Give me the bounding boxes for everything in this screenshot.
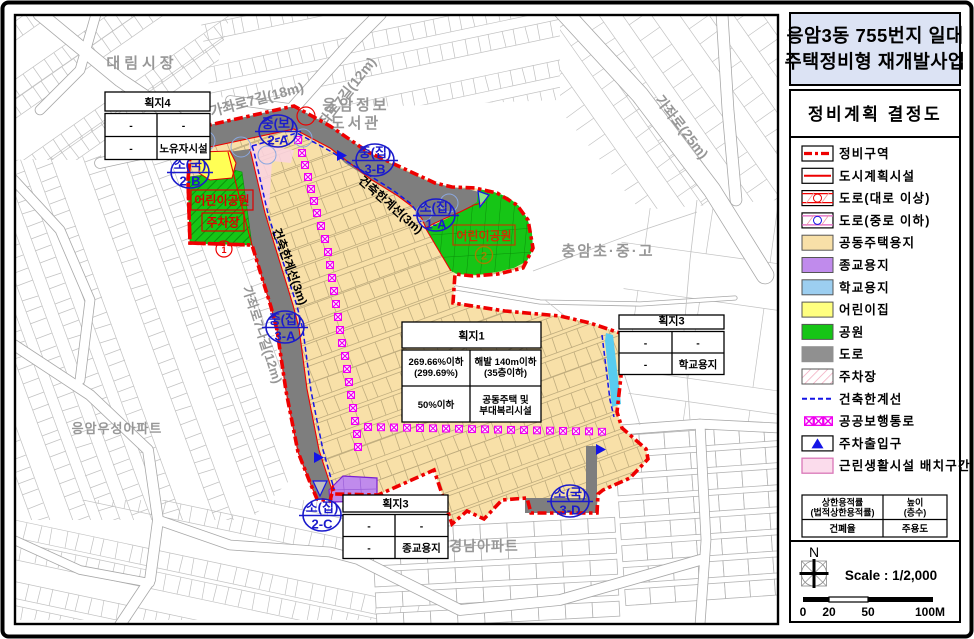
svg-text:공동주택 및: 공동주택 및 — [482, 394, 529, 406]
svg-text:상한용적률: 상한용적률 — [822, 497, 863, 508]
svg-text:20: 20 — [822, 605, 836, 619]
svg-text:도서관: 도서관 — [331, 115, 381, 132]
svg-text:응암3동 755번지 일대: 응암3동 755번지 일대 — [786, 25, 963, 46]
svg-text:도시계획시설: 도시계획시설 — [839, 168, 915, 183]
svg-text:2: 2 — [481, 251, 487, 263]
svg-text:도로(대로 이상): 도로(대로 이상) — [839, 191, 931, 206]
svg-text:주차장: 주차장 — [839, 369, 877, 384]
svg-text:0: 0 — [800, 605, 807, 619]
svg-text:공원: 공원 — [839, 325, 864, 339]
svg-text:주차출입구: 주차출입구 — [839, 436, 903, 451]
svg-text:2-B: 2-B — [180, 174, 201, 189]
svg-text:학교용지: 학교용지 — [839, 280, 890, 295]
svg-text:3-B: 3-B — [365, 162, 386, 177]
svg-text:2-C: 2-C — [312, 517, 334, 532]
svg-text:공공보행통로: 공공보행통로 — [839, 414, 915, 429]
svg-text:소(집): 소(집) — [306, 500, 339, 515]
svg-text:-: - — [420, 521, 424, 533]
svg-text:중(집): 중(집) — [269, 312, 302, 327]
svg-text:50%이하: 50%이하 — [418, 399, 455, 411]
svg-text:해발 140m이하: 해발 140m이하 — [475, 356, 537, 368]
svg-text:(법적상한용적률): (법적상한용적률) — [811, 507, 875, 518]
svg-text:건축한계선: 건축한계선 — [839, 391, 903, 406]
svg-text:주차장: 주차장 — [206, 215, 239, 230]
svg-text:1: 1 — [221, 245, 226, 255]
svg-text:3-A: 3-A — [275, 329, 297, 344]
svg-text:근린생활시설 배치구간: 근린생활시설 배치구간 — [839, 458, 971, 473]
svg-text:-: - — [367, 543, 371, 555]
svg-text:중(집): 중(집) — [359, 145, 392, 160]
svg-text:-: - — [644, 337, 648, 349]
svg-text:소(집): 소(집) — [420, 200, 453, 215]
svg-text:(299.69%): (299.69%) — [414, 368, 458, 379]
svg-text:Scale : 1/2,000: Scale : 1/2,000 — [845, 568, 937, 583]
svg-text:정비계획 결정도: 정비계획 결정도 — [808, 105, 942, 124]
svg-text:응암우성아파트: 응암우성아파트 — [72, 421, 163, 436]
svg-text:(35층이하): (35층이하) — [484, 367, 527, 379]
svg-text:획지3: 획지3 — [382, 497, 408, 511]
svg-text:어린이공원: 어린이공원 — [194, 193, 249, 208]
svg-text:대림시장: 대림시장 — [106, 54, 177, 72]
svg-text:종교용지: 종교용지 — [839, 258, 890, 273]
svg-text:-: - — [182, 120, 186, 132]
svg-text:-: - — [129, 143, 133, 155]
svg-text:종교용지: 종교용지 — [402, 542, 441, 555]
svg-text:269.66%이하: 269.66%이하 — [409, 356, 464, 368]
svg-text:부대복리시설: 부대복리시설 — [479, 405, 532, 417]
svg-text:1-A: 1-A — [426, 217, 448, 232]
svg-text:(층수): (층수) — [904, 507, 927, 518]
svg-text:공동주택용지: 공동주택용지 — [839, 235, 915, 250]
svg-text:높이: 높이 — [907, 497, 924, 508]
svg-text:도로(중로 이하): 도로(중로 이하) — [839, 213, 931, 228]
svg-text:충암초·중·고: 충암초·중·고 — [562, 242, 655, 260]
svg-text:주택정비형 재개발사업: 주택정비형 재개발사업 — [785, 51, 966, 72]
svg-text:-: - — [696, 337, 700, 349]
svg-text:어린이집: 어린이집 — [839, 302, 890, 317]
svg-text:중(보): 중(보) — [262, 116, 295, 131]
svg-text:획지3: 획지3 — [658, 314, 684, 328]
svg-text:100M: 100M — [915, 605, 945, 619]
svg-text:소(국): 소(국) — [554, 486, 587, 501]
svg-text:획지1: 획지1 — [458, 329, 484, 343]
svg-text:건폐율: 건폐율 — [829, 523, 855, 535]
svg-text:주용도: 주용도 — [902, 524, 928, 535]
svg-text:N: N — [809, 544, 819, 560]
svg-text:경남아파트: 경남아파트 — [449, 538, 518, 554]
svg-text:노유자시설: 노유자시설 — [159, 142, 207, 155]
svg-text:3-D: 3-D — [560, 503, 581, 518]
svg-text:50: 50 — [861, 605, 875, 619]
svg-text:-: - — [129, 120, 133, 132]
svg-text:정비구역: 정비구역 — [839, 146, 890, 161]
svg-text:2-A: 2-A — [268, 133, 290, 148]
svg-text:도로: 도로 — [839, 348, 864, 362]
svg-text:획지4: 획지4 — [144, 96, 171, 110]
svg-text:-: - — [367, 521, 371, 533]
svg-text:-: - — [644, 359, 648, 371]
svg-text:어린이공원: 어린이공원 — [456, 228, 511, 243]
svg-text:학교용지: 학교용지 — [679, 358, 718, 371]
